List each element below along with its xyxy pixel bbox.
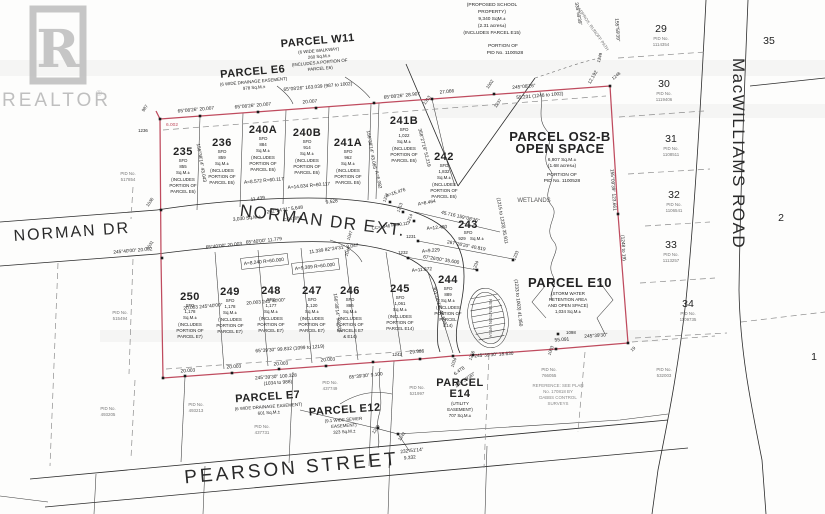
lot-number: 241A xyxy=(334,137,362,149)
pid-label: PID No. xyxy=(188,402,203,407)
dim-label: A=14.834 R=60.117 xyxy=(287,181,330,191)
adj-lot-number: 33 xyxy=(665,239,677,251)
parcel-desc: (UTILITY xyxy=(451,401,469,406)
parcel-e10-bracket-west xyxy=(532,286,546,318)
lot-note: (INCLUDES xyxy=(300,316,324,321)
pid-label: PID No. xyxy=(120,171,135,176)
school-line: PID No. 1100528 xyxy=(487,50,524,56)
school-line: (PROPOSED SCHOOL xyxy=(467,2,518,8)
school-line: PROPERTY) xyxy=(478,9,506,15)
lot-number: 250 xyxy=(180,291,200,303)
lot-note: (INCLUDES xyxy=(178,322,202,327)
lot-number: 248 xyxy=(261,285,281,297)
parcel-desc: (1.68 acres±) xyxy=(548,163,577,169)
lot-number: 236 xyxy=(212,137,232,149)
lot-235: 235 SFD 855 Sq.M.± (INCLUDES PORTION OF … xyxy=(169,146,197,194)
parcel-name: OPEN SPACE xyxy=(515,141,604,156)
adj-lot-number: 30 xyxy=(658,78,670,90)
parcel-desc: 978 Sq.M.± xyxy=(243,84,266,91)
dim-label: 27.066 xyxy=(439,88,455,96)
lot-note: (INCLUDES xyxy=(259,316,283,321)
lot-number: 240B xyxy=(293,127,321,139)
lot-note: PARCEL E7) xyxy=(258,328,284,333)
dim-label: 20.003 xyxy=(320,356,335,363)
dim-label: 156°38'14" 43.065 xyxy=(365,130,378,170)
pearson-south-lot-lines xyxy=(0,466,205,514)
lot-area: 914 xyxy=(303,145,311,150)
marker-label: 1313 xyxy=(422,94,432,105)
adj-lot-number: 34 xyxy=(682,298,694,310)
parcel-desc: 323 Sq.M.± xyxy=(333,428,356,435)
lot-note: (INCLUDES xyxy=(251,155,275,160)
marker-label: 1242 xyxy=(392,352,402,357)
plat-map-page: R REALTOR ® xyxy=(0,0,825,514)
street-label-norman-dr: NORMAN DR xyxy=(13,220,131,245)
lot-area: 1,022 xyxy=(399,133,411,138)
e7-easement-dashed xyxy=(166,350,425,369)
parcel-desc: 601 Sq.M.± xyxy=(258,409,281,416)
lot-note: PARCEL E6) xyxy=(250,167,276,172)
lot-245: 245 SFD 1,061 Sq.M.± (INCLUDES PORTION O… xyxy=(386,283,414,331)
pid-label: PID No. xyxy=(541,367,556,372)
lot-note: PORTION OF xyxy=(386,320,414,325)
dim-label: 20.003 xyxy=(226,363,241,370)
dim-label: A=8.572 R=60.117 xyxy=(244,176,285,185)
lot-area: 929 xyxy=(458,236,466,241)
adj-lot-pidno: 1113257 xyxy=(663,258,680,263)
parcel-desc: 707 Sq.M.± xyxy=(449,413,472,418)
adj-lot-divider xyxy=(640,278,715,283)
dim-label: 65°08'26" 20.007 xyxy=(177,105,214,114)
dashed-line xyxy=(129,259,133,374)
dim-label: 245°39'30" 18.630 xyxy=(474,351,514,360)
pid-label: 532003 xyxy=(657,373,672,378)
dashed-line xyxy=(741,312,825,322)
lot-area: 1,178 xyxy=(225,304,237,309)
lot-unit: Sq.M.± xyxy=(223,310,237,315)
parcel-desc: AND OPEN SPACE) xyxy=(548,303,589,308)
lot-240A: 240A SFD 884 Sq.M.± (INCLUDES PORTION OF… xyxy=(249,124,277,172)
pid-label: 517854 xyxy=(121,177,136,182)
adj-lot-pidno: 1108511 xyxy=(663,152,680,157)
lot-number: 235 xyxy=(173,146,193,158)
lot-type: SFD xyxy=(344,149,353,154)
lot-note: PORTION OF xyxy=(430,188,458,193)
marker-label: 1002 xyxy=(485,78,495,89)
lot-line xyxy=(240,113,243,207)
dim-label: (1215 to 1233) 35.911 xyxy=(495,197,509,245)
adj-lot-number: 32 xyxy=(668,189,680,201)
lot-note: (INCLUDES xyxy=(338,316,362,321)
lot-line xyxy=(283,110,286,204)
lot-type: SFD xyxy=(444,286,453,291)
lot-236: 236 SFD 859 Sq.M.± (INCLUDES PORTION OF … xyxy=(208,137,236,185)
dashed-line xyxy=(131,187,133,219)
plat-map: R REALTOR ® xyxy=(0,0,825,514)
adj-lot-number: 35 xyxy=(763,35,775,47)
lot-note: (INCLUDES xyxy=(336,168,360,173)
dim-label: 6.002 xyxy=(166,122,178,128)
wetlands-boundary xyxy=(540,92,556,300)
lot-note: PORTION OF xyxy=(216,323,244,328)
lot-number: 240A xyxy=(249,124,277,136)
pid-label: 521997 xyxy=(410,391,425,396)
dim-label: 156°38'14" 58.328 xyxy=(332,293,343,333)
dim-label: 65°08'26" 28.907 xyxy=(383,91,420,101)
marker-label: 1034 xyxy=(450,357,458,368)
reference-line: SURVEYS xyxy=(548,401,569,406)
scan-band xyxy=(0,60,825,76)
lot-241B: 241B SFD 1,022 Sq.M.± (INCLUDES PORTION … xyxy=(390,115,418,163)
lot-note: (INCLUDES xyxy=(171,177,195,182)
pid-label: PID No. xyxy=(112,310,127,315)
parcel-e7-label: PARCEL E7 (6 WIDE DRAINAGE EASEMENT) 601… xyxy=(234,389,304,418)
lot-note: PARCEL E6) xyxy=(335,180,361,185)
lot-249: 249 SFD 1,178 Sq.M.± (INCLUDES PORTION O… xyxy=(216,286,244,334)
dim-label: 9.332 xyxy=(404,454,417,461)
lot-242: 242 SFD 1,832 Sq.M.± (INCLUDES PORTION O… xyxy=(430,151,458,199)
parcel-desc: PID No. 1100528 xyxy=(544,178,581,184)
marker-label: 1241 xyxy=(397,430,407,441)
dim-label: 29.986 xyxy=(409,348,424,355)
lot-unit: Sq.M.± xyxy=(397,139,411,144)
adj-lot-pid: PID No. xyxy=(666,202,681,207)
e14-east-dashed xyxy=(484,354,489,468)
lot-note: (INCLUDES xyxy=(392,146,416,151)
pid-label: 437749 xyxy=(323,386,338,391)
adj-lot-pid: PID No. xyxy=(656,91,671,96)
dim-label: 67°26'00" 35.600 xyxy=(423,254,460,266)
dim-label: 65°40'00" 20.003 xyxy=(205,241,242,251)
lot-area: 1,061 xyxy=(395,301,407,306)
norman-dr-north-edge xyxy=(0,210,157,222)
lot-type: SFD xyxy=(226,298,235,303)
lot-note: PARCEL E6) xyxy=(209,180,235,185)
marker-label: 1232 xyxy=(398,250,408,255)
lot-unit: Sq.M.± xyxy=(256,148,270,153)
school-line: (INCLUDES PARCEL E15) xyxy=(463,30,521,36)
lot-area: 855 xyxy=(179,164,187,169)
reference-line: REFERENCE: SEE PLAN xyxy=(533,383,584,388)
adj-lot-pid: PID No. xyxy=(663,146,678,151)
parcel-desc: EASEMENT) xyxy=(447,407,473,412)
retention-area-label: RETENTION AREA xyxy=(488,299,493,337)
parcel-os2b-label: PARCEL OS2-B OPEN SPACE 6,807 Sq.M.± (1.… xyxy=(509,129,611,184)
pid-label: 515494 xyxy=(113,316,128,321)
lot-type: SFD xyxy=(440,163,449,168)
school-line: 9,340 SqM.± xyxy=(478,16,506,22)
lot-unit: Sq.M.± xyxy=(183,315,197,320)
lot-number: 242 xyxy=(434,151,454,163)
school-line: PORTION OF xyxy=(488,43,518,49)
w11-leader xyxy=(345,77,370,98)
school-property-labels: (PROPOSED SCHOOL PROPERTY) 9,340 SqM.± (… xyxy=(463,2,523,56)
lot-type: SFD xyxy=(346,297,355,302)
lot-note: (INCLUDES xyxy=(388,314,412,319)
dim-label: 65°39'30" 99.832 (1099 to 1219) xyxy=(255,344,325,355)
dim-label: 267°26'20" 40.819 xyxy=(446,239,486,252)
dim-label: 55.091 xyxy=(554,336,569,343)
lot-247: 247 SFD 1,120 Sq.M.± (INCLUDES PORTION O… xyxy=(298,285,326,333)
dashed-line xyxy=(131,380,135,458)
runoff-path-label: APPROX. RUNOFF PATH xyxy=(576,7,610,52)
dim-label: 11.339 82°24'31" 8.047 xyxy=(309,243,359,256)
lot-unit: Sq.M.± xyxy=(393,307,407,312)
reference-line: DABBS CONTROL xyxy=(539,395,577,400)
parcel-name: PARCEL E10 xyxy=(528,275,612,290)
lot-note: PORTION OF xyxy=(176,328,204,333)
dim-label: 156°38'14" 43.043 xyxy=(195,143,208,183)
lot-number: 241B xyxy=(390,115,418,127)
marker-label: 19 xyxy=(629,345,636,352)
parcel-desc: 6,807 Sq.M.± xyxy=(548,157,577,163)
lot-240B: 240B SFD 914 Sq.M.± (INCLUDES PORTION OF… xyxy=(293,127,321,175)
lot-unit: Sq.M.± xyxy=(300,151,314,156)
wetlands-label: WETLANDS xyxy=(517,198,550,204)
school-line: (2.31 acres±) xyxy=(478,23,507,29)
parcel-e10-label: PARCEL E10 (STORM WATER RETENTION AREA A… xyxy=(528,275,612,314)
marker-label: 1036 xyxy=(145,196,155,207)
marker-label: 1234 xyxy=(472,260,480,271)
lot-unit: Sq.M.± xyxy=(470,236,484,241)
street-label-norman-dr-ext: NORMAN DR EXT. xyxy=(239,201,407,240)
dim-label: 6.478 xyxy=(453,365,467,377)
lot-note: PORTION OF xyxy=(208,174,236,179)
dim-label: 155°59'39" xyxy=(613,18,621,42)
lot-area: 1,120 xyxy=(307,303,319,308)
lot-area: 1,832 xyxy=(439,169,451,174)
adj-lot-number: 2 xyxy=(778,212,784,224)
marker-label: 987 xyxy=(141,103,150,112)
lot-unit: Sq.M.± xyxy=(441,298,455,303)
dim-label: 20.007 xyxy=(302,98,317,105)
lot-type: SFD xyxy=(400,127,409,132)
registered-mark-icon: ® xyxy=(96,89,102,98)
realtor-logo-r: R xyxy=(36,19,80,80)
dim-label: A=12.480 xyxy=(426,224,447,232)
dim-label: 232°51'14" xyxy=(400,447,424,455)
parcel-desc: RETENTION AREA xyxy=(549,297,587,302)
scan-band xyxy=(430,104,825,118)
adj-lot-divider xyxy=(645,222,710,226)
lot-number: 246 xyxy=(340,285,360,297)
lot-note: (INCLUDES xyxy=(218,317,242,322)
lot-number: 245 xyxy=(390,283,410,295)
lot-unit: Sq.M.± xyxy=(215,161,229,166)
pid-label: PID No. xyxy=(322,380,337,385)
adj-lot-divider xyxy=(618,52,706,58)
dashed-line xyxy=(50,263,58,466)
lot35-south-line xyxy=(750,78,825,86)
lot-note: PORTION OF xyxy=(257,322,285,327)
parcel-name: E14 xyxy=(449,388,470,400)
pid-label: 437731 xyxy=(255,430,270,435)
pid-label: PID No. xyxy=(100,406,115,411)
adj-lot-divider xyxy=(628,169,710,174)
pid-label: 493205 xyxy=(101,412,116,417)
lot-note: PORTION OF xyxy=(293,164,321,169)
lot-unit: Sq.M.± xyxy=(341,161,355,166)
lot-note: PARCEL E6) xyxy=(170,189,196,194)
dim-label: (1248 to 19) xyxy=(619,235,627,262)
street-label-macwilliams: MacWILLIAMS ROAD xyxy=(729,58,748,249)
lot-note: PARCEL E6) xyxy=(431,194,457,199)
dim-label: 11.439 xyxy=(250,195,265,203)
marker-label: 1003 xyxy=(547,345,555,356)
lot-note: PARCEL E6) xyxy=(391,158,417,163)
adj-lot-pid: PID No. xyxy=(653,36,668,41)
lot-note: (INCLUDES xyxy=(295,158,319,163)
lot-unit: Sq.M.± xyxy=(437,175,451,180)
parcel-desc: PORTION OF xyxy=(547,172,577,178)
parcel-name: PARCEL E12 xyxy=(309,402,382,419)
dim-label: 9.528 xyxy=(325,198,338,206)
lot-line xyxy=(326,107,329,202)
lot-note: (INCLUDES xyxy=(432,182,456,187)
pid-label: PID No. xyxy=(656,367,671,372)
lot-type: SFD xyxy=(218,149,227,154)
lot-note: PARCEL E7) xyxy=(217,329,243,334)
lot-248: 248 SFD 1,177 Sq.M.± (INCLUDES PORTION O… xyxy=(257,285,285,333)
dim-label: 20.003 xyxy=(273,360,288,367)
adj-lot-pid: PID No. xyxy=(680,311,695,316)
lot-unit: Sq.M.± xyxy=(343,309,357,314)
lot-note: (INCLUDES xyxy=(210,168,234,173)
dim-label: A=9.229 xyxy=(422,247,441,255)
marker-label: 1233 xyxy=(512,250,520,261)
reference-line: No. 170818 BY xyxy=(543,389,573,394)
marker-label: 1231 xyxy=(406,234,416,239)
dim-label: 65°08'26" 163.039 (987 to 1002) xyxy=(283,81,353,93)
lot-note: PARCEL E7) xyxy=(177,334,203,339)
lot-note: PARCEL E14) xyxy=(386,326,414,331)
lot-type: SFD xyxy=(308,297,317,302)
lot-type: SFD xyxy=(396,295,405,300)
realtor-wordmark: REALTOR xyxy=(2,90,111,111)
lot-line xyxy=(289,372,293,463)
marker-label: 1098 xyxy=(566,330,576,335)
dim-label: 65°08'26" 20.007 xyxy=(234,101,271,110)
lot-area: 962 xyxy=(344,155,352,160)
reference-note: REFERENCE: SEE PLAN No. 170818 BY DABBS … xyxy=(533,383,584,406)
dim-label: A=11.872 xyxy=(412,266,433,274)
lot-note: PARCEL E6) xyxy=(294,170,320,175)
dim-label: A=8.464 xyxy=(417,198,436,207)
dim-label: 358°27'19" 52.219 xyxy=(416,128,431,168)
lot-number: 249 xyxy=(220,286,240,298)
lot-line xyxy=(181,377,185,462)
pid-label: PID No. xyxy=(254,424,269,429)
lot-unit: Sq.M.± xyxy=(305,309,319,314)
dim-label: 245°08'26" xyxy=(512,83,536,91)
lot-type: SFD xyxy=(259,136,268,141)
lot-note: PORTION OF xyxy=(169,183,197,188)
dim-label: 65°39'30" 9.100 xyxy=(349,371,384,381)
pid-label: PID No. xyxy=(409,385,424,390)
parcel-e6-label: PARCEL E6 (6 WIDE DRAINAGE EASEMENT) 978… xyxy=(219,63,289,93)
lot-area: 886 xyxy=(346,303,354,308)
lot-unit: Sq.M.± xyxy=(176,170,190,175)
adj-lot-number: 31 xyxy=(665,133,677,145)
marker-label: 1031 xyxy=(145,239,155,250)
road-lines xyxy=(0,0,766,514)
lot-note: PORTION OF xyxy=(298,322,326,327)
dashed-line xyxy=(578,352,585,432)
lot-note: PORTION OF xyxy=(334,174,362,179)
dim-label: 20.003 xyxy=(180,367,195,374)
lot-number: 247 xyxy=(302,285,322,297)
lot-area: 889 xyxy=(444,292,452,297)
school-property-boundary xyxy=(406,64,535,186)
lot-type: SFD xyxy=(303,139,312,144)
adj-lot-pidno: 1109735 xyxy=(680,317,697,322)
adj-lot-pidno: 1114354 xyxy=(653,42,670,47)
lot-241A: 241A SFD 962 Sq.M.± (INCLUDES PORTION OF… xyxy=(334,137,362,185)
dim-label: (1233 to 1003) 41.350 xyxy=(513,279,524,327)
dim-label: A=6.082 xyxy=(373,170,383,189)
adj-lot-pid: PID No. xyxy=(663,252,678,257)
lot-area: 884 xyxy=(259,142,267,147)
lot-area: 859 xyxy=(218,155,226,160)
dim-label: 65°40'00" 11.779 xyxy=(246,236,283,246)
pid-label: 766055 xyxy=(542,373,557,378)
lot-unit: Sq.M.± xyxy=(264,309,278,314)
adj-lot-pidno: 1106541 xyxy=(666,208,683,213)
lot-note: PORTION OF xyxy=(390,152,418,157)
adj-lot-number: 29 xyxy=(655,23,667,35)
parcel-desc: (STORM WATER xyxy=(551,291,585,296)
lot-note: PORTION OF xyxy=(249,161,277,166)
lot-type: SFD xyxy=(179,158,188,163)
norman-dr-south-edge xyxy=(0,254,157,266)
pid-label: 493213 xyxy=(189,408,204,413)
lot-type: SFD xyxy=(464,230,473,235)
adj-lot-number: 1 xyxy=(811,351,817,363)
lot-note: PARCEL E7) xyxy=(299,328,325,333)
lot-number: 244 xyxy=(438,274,458,286)
parcel-desc: 1,034 Sq.M.± xyxy=(555,309,582,314)
marker-label: 1236 xyxy=(138,128,148,133)
adj-lot-pidno: 1119406 xyxy=(656,97,673,102)
lot-250: 250 SFD 1,178 Sq.M.± (INCLUDES PORTION O… xyxy=(176,291,204,339)
lot-note: & E14) xyxy=(343,334,357,339)
